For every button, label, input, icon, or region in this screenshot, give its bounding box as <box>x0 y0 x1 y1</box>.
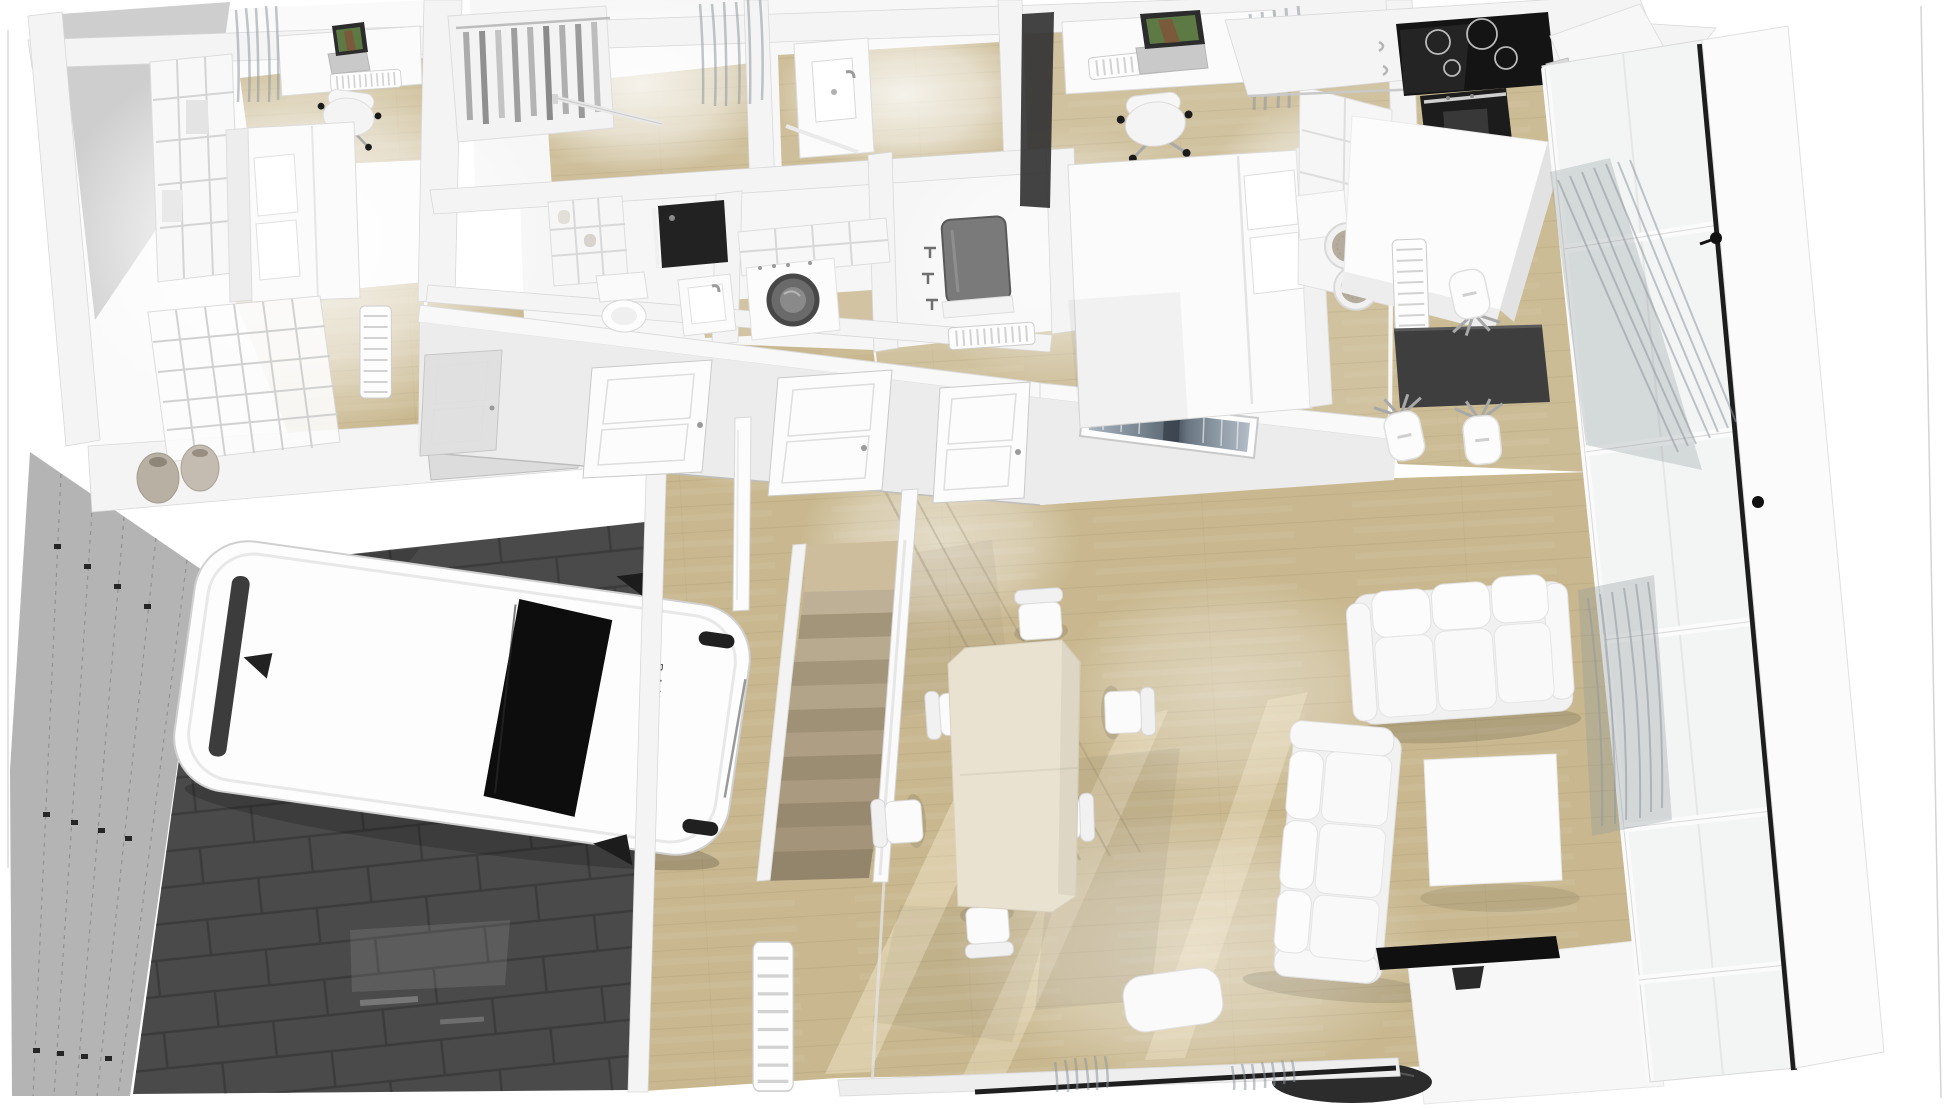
coffee-table <box>1420 754 1580 912</box>
dining-chair-1 <box>1011 587 1069 645</box>
bedroom2-laptop <box>1136 10 1208 74</box>
floorplan-3d-scene[interactable]: RANGE ROVER <box>0 0 1944 1110</box>
interior-door-3 <box>768 370 892 496</box>
bedroom1-divider-screen <box>148 296 340 462</box>
stair-railing-left <box>733 417 751 611</box>
interior-door-4 <box>933 382 1030 503</box>
interior-door-2 <box>583 360 712 478</box>
open-wardrobe <box>448 6 614 142</box>
dining-chair-4 <box>1100 684 1156 740</box>
washbasin <box>678 274 736 336</box>
cooktop <box>1396 12 1556 96</box>
bedroom1-bed <box>226 122 360 302</box>
vanity-sink <box>794 38 874 158</box>
bedroom2-bed <box>1068 146 1332 428</box>
interior-door-1 <box>420 350 502 456</box>
curtain-tieback-2 <box>1752 496 1764 508</box>
dining-table <box>948 640 1080 912</box>
curtain-tieback-1 <box>1710 232 1722 244</box>
sofa-top <box>1345 572 1583 749</box>
shower-panel <box>654 200 728 268</box>
kitchen-radiator <box>1392 239 1429 332</box>
wall-mirror <box>941 216 1011 304</box>
hall-radiator <box>753 942 793 1091</box>
washing-machine <box>746 258 840 340</box>
cubby-shelf <box>548 196 628 286</box>
dining-chair-3 <box>870 793 928 851</box>
dining-chair-6 <box>959 901 1017 959</box>
bar-table <box>1394 326 1550 408</box>
bedroom2-dark-panel <box>1020 12 1054 208</box>
floorplan-render-canvas[interactable]: RANGE ROVER <box>0 0 1944 1110</box>
bedroom1-wall-radiator <box>360 306 391 398</box>
